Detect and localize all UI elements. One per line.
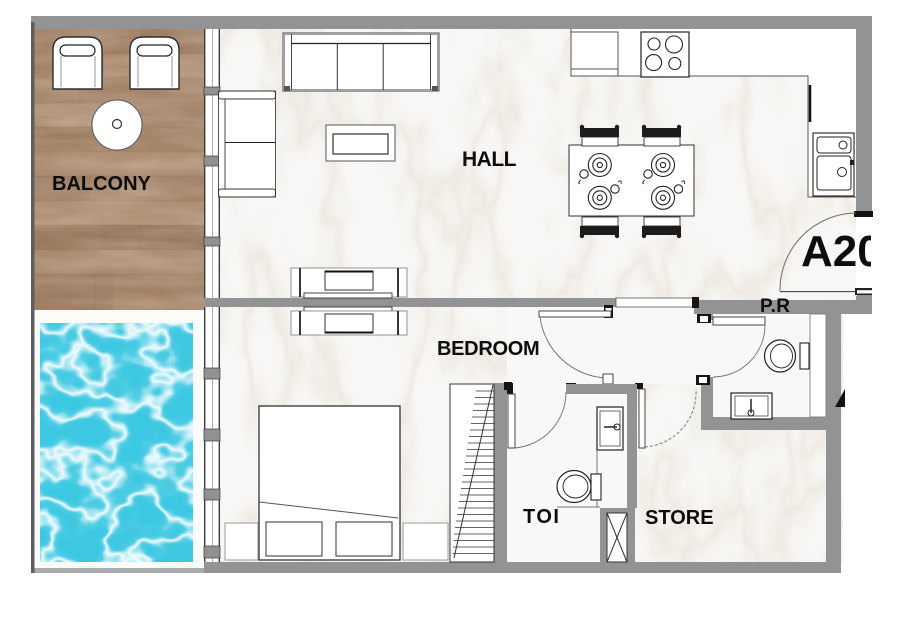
svg-text:HALL: HALL xyxy=(462,148,517,171)
svg-text:TOI: TOI xyxy=(523,506,560,528)
svg-text:STORE: STORE xyxy=(645,507,714,529)
svg-text:A20: A20 xyxy=(801,227,882,276)
svg-text:BEDROOM: BEDROOM xyxy=(437,338,539,360)
svg-text:P.R: P.R xyxy=(760,296,790,317)
svg-text:BALCONY: BALCONY xyxy=(52,173,152,195)
